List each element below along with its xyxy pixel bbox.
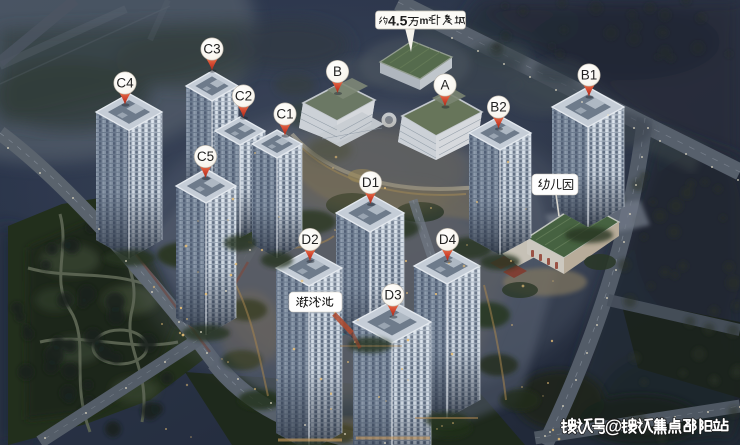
svg-text:D4: D4 xyxy=(439,232,457,247)
svg-text:m²: m² xyxy=(420,16,433,27)
svg-text:C1: C1 xyxy=(276,107,293,122)
svg-text:C2: C2 xyxy=(235,89,252,104)
svg-text:D1: D1 xyxy=(362,175,379,190)
svg-text:C4: C4 xyxy=(116,76,134,91)
svg-text:C5: C5 xyxy=(197,149,214,164)
svg-text:B2: B2 xyxy=(490,100,507,115)
svg-text:B: B xyxy=(333,64,342,79)
svg-text:A: A xyxy=(440,78,449,93)
svg-text:D3: D3 xyxy=(384,288,401,303)
svg-text:B1: B1 xyxy=(581,68,598,83)
svg-text:C3: C3 xyxy=(203,42,220,57)
svg-text:4.5: 4.5 xyxy=(388,13,408,29)
svg-text:@: @ xyxy=(605,417,623,437)
svg-text:D2: D2 xyxy=(301,232,318,247)
